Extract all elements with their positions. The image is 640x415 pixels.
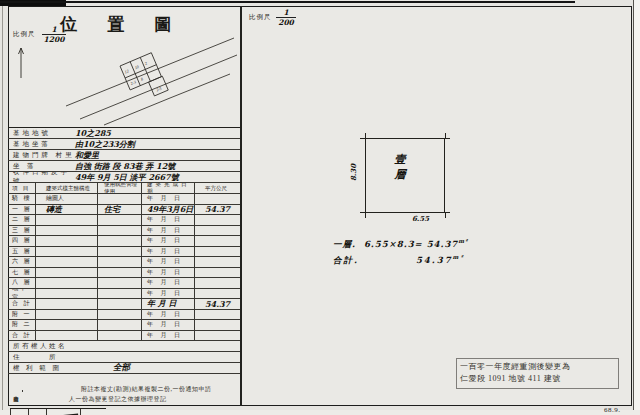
use-cell bbox=[98, 320, 142, 330]
scale-fraction-right: 1 200 bbox=[276, 9, 296, 26]
structure-cell bbox=[36, 268, 98, 278]
completion-date-cell: 年 月 日 bbox=[142, 194, 195, 204]
completion-date-cell: 年 月 日 bbox=[142, 226, 195, 236]
stamp-line-1: 一百零一年度經重測後變更為 bbox=[460, 361, 615, 373]
floor-label: 八 層 bbox=[8, 278, 36, 288]
area-cell bbox=[195, 278, 240, 288]
scan-artifact-top-line bbox=[0, 1, 575, 3]
scan-artifact-right-margin bbox=[634, 0, 640, 415]
completion-date-cell: 年 月 日 bbox=[142, 289, 195, 299]
floor-label: 一 層 bbox=[8, 205, 36, 215]
info-row: 基地地號10之285 bbox=[8, 128, 240, 139]
calc1-expression: 6.55×8.3= bbox=[364, 239, 423, 249]
scale-label-right: 比例尺 bbox=[249, 13, 272, 22]
owner-row-label: 所有權人姓名 bbox=[8, 342, 113, 351]
owner-row: 所有權人姓名 bbox=[8, 341, 240, 352]
svg-text:2-3: 2-3 bbox=[130, 79, 137, 86]
floor-label: 合 計 bbox=[8, 299, 36, 309]
info-row-label: 建物門牌 村里 bbox=[8, 151, 75, 160]
structure-cell bbox=[36, 289, 98, 299]
structure-cell bbox=[36, 278, 98, 288]
floor-row: 附 二年 月 日 bbox=[8, 320, 240, 331]
info-row-label: 基地地號 bbox=[8, 129, 75, 138]
area-cell bbox=[195, 257, 240, 267]
use-cell bbox=[98, 194, 142, 204]
note-text: 附註本複丈(勘測)結果複製二份,一份通知申請 人一份為變更登記之依據辦理登記 bbox=[23, 376, 240, 404]
calc2-unit: m² bbox=[453, 254, 465, 260]
area-cell bbox=[195, 247, 240, 257]
svg-text:12: 12 bbox=[124, 68, 130, 74]
use-cell bbox=[98, 299, 142, 309]
use-cell bbox=[98, 278, 142, 288]
svg-text:10: 10 bbox=[134, 64, 140, 70]
area-cell bbox=[195, 268, 240, 278]
owner-rows: 所有權人姓名住 所權 利 範 圍全部 bbox=[8, 341, 240, 374]
completion-date-cell: 年 月 日 bbox=[142, 278, 195, 288]
owner-row: 權 利 範 圍全部 bbox=[8, 363, 240, 374]
area-cell: 54.37 bbox=[195, 299, 240, 309]
structure-cell bbox=[36, 310, 98, 320]
structure-cell: 磚造 bbox=[36, 205, 98, 215]
scale-denominator-right: 200 bbox=[276, 17, 296, 27]
plan-width-dimension: 6.55 bbox=[412, 214, 429, 223]
floor-label: 七 層 bbox=[8, 268, 36, 278]
use-cell bbox=[98, 236, 142, 246]
use-cell bbox=[98, 331, 142, 341]
floor-header-cell: 建築式樣主體構造 bbox=[36, 183, 98, 193]
floor-row: 二 層年 月 日 bbox=[8, 215, 240, 226]
corner-tick bbox=[445, 213, 446, 218]
parcel-block: 12102 2-382-5 bbox=[120, 52, 168, 103]
info-row: 收件日期及字號49年 9月 5日 淡平 2667號 bbox=[8, 172, 240, 183]
use-cell bbox=[98, 247, 142, 257]
structure-cell bbox=[36, 320, 98, 330]
calc2-label: 合計. bbox=[333, 255, 359, 265]
corner-tick bbox=[445, 133, 446, 138]
info-row-value: 自強 街路 段 83巷 弄 12號 bbox=[75, 161, 240, 172]
area-cell bbox=[195, 215, 240, 225]
floor-table-header: 項 目建築式樣主體構造使用執照管理使用建築完成日期平方公尺 bbox=[8, 183, 240, 194]
floor-label: 三 層 bbox=[8, 226, 36, 236]
info-row: 坐 落自強 街路 段 83巷 弄 12號 bbox=[8, 161, 240, 172]
note-row: 申請複丈人簽章 附註本複丈(勘測)結果複製二份,一份通知申請 人一份為變更登記之… bbox=[8, 374, 240, 407]
note-line-1: 附註本複丈(勘測)結果複製二份,一份通知申請 bbox=[81, 385, 240, 395]
corner-tick bbox=[365, 133, 366, 138]
info-row-value: 49年 9月 5日 淡平 2667號 bbox=[75, 172, 240, 183]
use-cell bbox=[98, 257, 142, 267]
calc1-value: 54.37 bbox=[427, 239, 459, 249]
info-rows: 基地地號10之285基地坐落由10之233分割建物門牌 村里和愛里坐 落自強 街… bbox=[8, 128, 240, 183]
completion-date-cell: 年 月 日 bbox=[142, 320, 195, 330]
panel-divider-line bbox=[240, 6, 242, 406]
floor-plan-label: 壹層 bbox=[391, 144, 406, 176]
floor-row: 地下室年 月 日 bbox=[8, 289, 240, 300]
floor-label: 騎 樓 bbox=[8, 194, 36, 204]
owner-row: 住 所 bbox=[8, 352, 240, 363]
floor-label: 五 層 bbox=[8, 247, 36, 257]
completion-date-cell: 年 月 日 bbox=[142, 331, 195, 341]
corner-tick bbox=[445, 138, 450, 139]
floor-row: 一 層磚造住宅49年3月6日54.37 bbox=[8, 205, 240, 216]
corner-tick bbox=[365, 213, 366, 218]
calc1-label: 一層. bbox=[333, 239, 356, 249]
structure-cell bbox=[36, 226, 98, 236]
use-cell bbox=[98, 268, 142, 278]
completion-date-cell: 年 月 日 bbox=[142, 299, 195, 309]
owner-row-label: 住 所 bbox=[8, 353, 113, 362]
structure-cell bbox=[36, 331, 98, 341]
floor-rows: 騎 樓繪圖人年 月 日一 層磚造住宅49年3月6日54.37二 層年 月 日三 … bbox=[8, 194, 240, 341]
info-row-label: 基地坐落 bbox=[8, 140, 75, 149]
scan-artifact-left-edge bbox=[2, 6, 3, 410]
use-cell bbox=[98, 289, 142, 299]
floor-row: 六 層年 月 日 bbox=[8, 257, 240, 268]
completion-date-cell: 年 月 日 bbox=[142, 247, 195, 257]
floor-label: 附 二 bbox=[8, 320, 36, 330]
north-arrow-icon bbox=[19, 48, 24, 78]
floor-label: 四 層 bbox=[8, 236, 36, 246]
info-row-value: 由10之233分割 bbox=[75, 139, 240, 150]
floor-row: 三 層年 月 日 bbox=[8, 226, 240, 237]
structure-cell bbox=[36, 215, 98, 225]
structure-cell bbox=[36, 247, 98, 257]
floor-header-cell: 使用執照管理使用 bbox=[98, 183, 142, 193]
structure-cell: 繪圖人 bbox=[36, 194, 98, 204]
use-cell bbox=[98, 226, 142, 236]
calc1-unit: m² bbox=[458, 238, 468, 244]
floor-label: 附 一 bbox=[8, 310, 36, 320]
floor-row: 七 層年 月 日 bbox=[8, 268, 240, 279]
floor-row: 合 計年 月 日 bbox=[8, 331, 240, 342]
floor-label: 合 計 bbox=[8, 331, 36, 341]
svg-text:2-5: 2-5 bbox=[155, 86, 162, 93]
use-cell bbox=[98, 215, 142, 225]
building-survey-table: 基地地號10之285基地坐落由10之233分割建物門牌 村里和愛里坐 落自強 街… bbox=[8, 127, 240, 406]
area-calc-line-1: 一層. 6.55×8.3= 54.37m² bbox=[333, 238, 469, 251]
floor-label: 地下室 bbox=[8, 289, 36, 299]
area-calc-line-2: 合計. 54.37m² bbox=[333, 254, 465, 267]
area-cell bbox=[195, 194, 240, 204]
floor-row: 八 層年 月 日 bbox=[8, 278, 240, 289]
floor-header-cell: 平方公尺 bbox=[195, 183, 240, 193]
floor-header-cell: 建築完成日期 bbox=[142, 183, 195, 193]
surveyor-signature-label: 申請複丈人簽章 bbox=[8, 390, 23, 392]
completion-date-cell: 49年3月6日 bbox=[142, 205, 195, 215]
area-cell bbox=[195, 331, 240, 341]
info-row-value: 10之285 bbox=[75, 128, 240, 139]
scale-numerator-right: 1 bbox=[276, 9, 296, 17]
note-line-2: 人一份為變更登記之依據辦理登記 bbox=[69, 395, 240, 405]
plan-height-dimension: 8.30 bbox=[349, 158, 358, 188]
area-cell bbox=[195, 236, 240, 246]
info-row: 建物門牌 村里和愛里 bbox=[8, 150, 240, 161]
structure-cell bbox=[36, 257, 98, 267]
floor-row: 合 計年 月 日54.37 bbox=[8, 299, 240, 310]
completion-date-cell: 年 月 日 bbox=[142, 215, 195, 225]
svg-text:8: 8 bbox=[140, 76, 144, 81]
use-cell bbox=[98, 310, 142, 320]
cutoff-handwriting bbox=[48, 409, 78, 415]
completion-date-cell: 年 月 日 bbox=[142, 236, 195, 246]
floor-row: 附 一年 月 日 bbox=[8, 310, 240, 321]
floor-row: 騎 樓繪圖人年 月 日 bbox=[8, 194, 240, 205]
info-row-label: 坐 落 bbox=[8, 162, 75, 171]
structure-cell bbox=[36, 299, 98, 309]
form-version-code: 68.9. bbox=[604, 406, 621, 414]
page-edge-partial-row bbox=[10, 408, 106, 415]
remeasurement-stamp: 一百零一年度經重測後變更為 仁愛段 1091 地號 411 建號 bbox=[456, 358, 619, 389]
calc2-value: 54.37 bbox=[416, 255, 453, 265]
completion-date-cell: 年 月 日 bbox=[142, 257, 195, 267]
use-cell: 住宅 bbox=[98, 205, 142, 215]
floor-label: 二 層 bbox=[8, 215, 36, 225]
info-row-label: 收件日期及字號 bbox=[8, 172, 75, 183]
structure-cell bbox=[36, 236, 98, 246]
stamp-line-2: 仁愛段 1091 地號 411 建號 bbox=[460, 373, 615, 385]
area-cell bbox=[195, 289, 240, 299]
corner-tick bbox=[445, 212, 450, 213]
floor-label: 六 層 bbox=[8, 257, 36, 267]
completion-date-cell: 年 月 日 bbox=[142, 268, 195, 278]
info-row-value: 和愛里 bbox=[75, 150, 240, 161]
owner-row-value: 全部 bbox=[113, 363, 240, 374]
svg-text:2: 2 bbox=[144, 60, 148, 65]
floor-header-cell: 項 目 bbox=[8, 183, 36, 193]
floor-row: 五 層年 月 日 bbox=[8, 247, 240, 258]
floor-row: 四 層年 月 日 bbox=[8, 236, 240, 247]
area-cell bbox=[195, 226, 240, 236]
completion-date-cell: 年 月 日 bbox=[142, 310, 195, 320]
area-cell bbox=[195, 310, 240, 320]
area-cell: 54.37 bbox=[195, 205, 240, 215]
scan-artifact-right-edge bbox=[633, 0, 634, 412]
info-row: 基地坐落由10之233分割 bbox=[8, 139, 240, 150]
location-map-sketch: 12102 2-382-5 bbox=[8, 8, 240, 127]
area-cell bbox=[195, 320, 240, 330]
owner-row-label: 權 利 範 圍 bbox=[8, 364, 113, 373]
road-lines bbox=[66, 38, 237, 125]
